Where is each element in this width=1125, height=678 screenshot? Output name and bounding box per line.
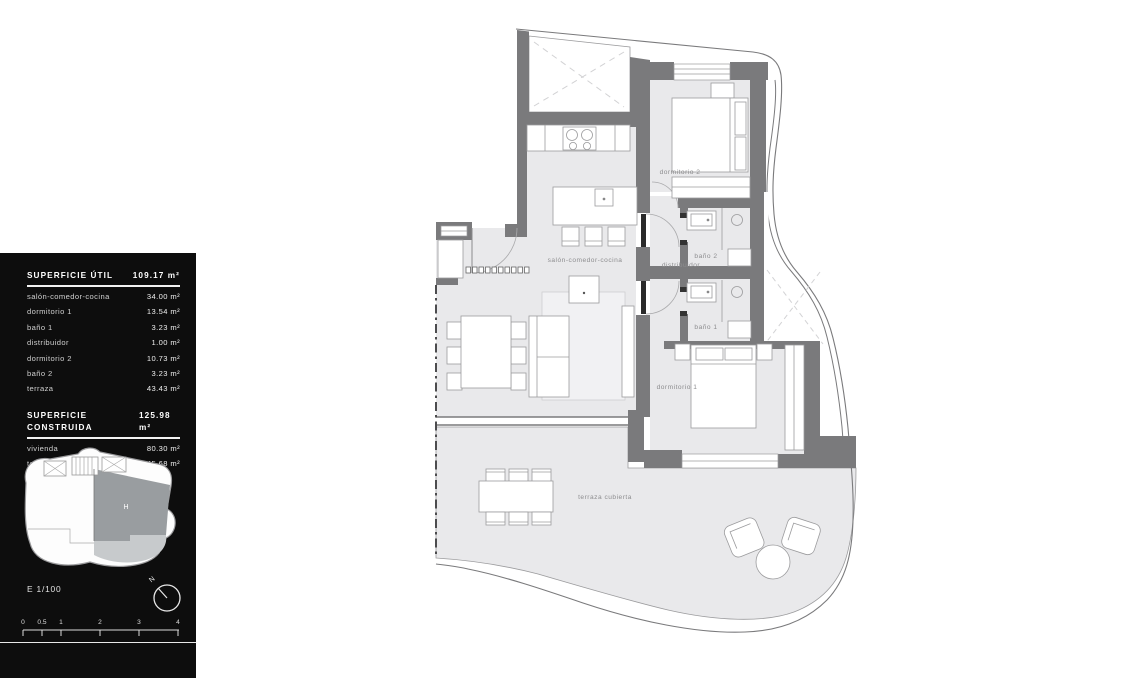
table-row: baño 23.23 m² <box>27 366 180 381</box>
sidebar-divider <box>0 642 196 643</box>
elevator-shaft <box>529 36 630 112</box>
sideboard <box>622 306 634 397</box>
bar-stool <box>608 227 625 246</box>
superficie-util-title: SUPERFICIE ÚTIL <box>27 270 113 282</box>
row-value: 13.54 m² <box>147 304 180 319</box>
tick-label: 2 <box>98 619 102 626</box>
terrace-chair <box>509 512 528 525</box>
row-label: salón-comedor-cocina <box>27 289 110 304</box>
terrace-table <box>479 481 553 512</box>
mini-location-plan: H <box>10 443 186 573</box>
scale-ratio-text: E 1/100 <box>27 584 61 594</box>
terrace-chair <box>486 469 505 482</box>
glass-sliding-doors <box>436 417 630 425</box>
compass-needle <box>158 588 167 598</box>
tick-label: 4 <box>176 619 180 626</box>
superficie-construida-header: SUPERFICIE CONSTRUIDA 125.98 m² <box>27 410 180 439</box>
label-dormitorio1: dormitorio 1 <box>657 384 698 391</box>
tick-label: 0 <box>21 619 25 626</box>
north-compass: N <box>140 573 186 615</box>
entry-closet <box>438 240 463 278</box>
dining-chair <box>511 322 526 339</box>
superficie-util-header: SUPERFICIE ÚTIL 109.17 m² <box>27 270 180 287</box>
area-table: SUPERFICIE ÚTIL 109.17 m² salón-comedor-… <box>27 270 180 472</box>
row-value: 3.23 m² <box>151 320 180 335</box>
label-terraza: terraza cubierta <box>578 494 632 501</box>
superficie-util-total: 109.17 m² <box>133 270 180 282</box>
wardrobe <box>785 345 804 450</box>
scale-ticks <box>23 630 178 636</box>
shower-tray <box>728 249 751 266</box>
utility-shaft <box>764 192 827 346</box>
terrace-chair <box>509 469 528 482</box>
dining-chair <box>447 373 462 390</box>
superficie-construida-total: 125.98 m² <box>139 410 180 434</box>
pillow <box>696 348 723 360</box>
label-salon: salón-comedor-cocina <box>548 257 623 264</box>
nightstand <box>711 83 734 98</box>
row-label: baño 1 <box>27 320 53 335</box>
label-distribuidor: distribuidor <box>662 262 701 269</box>
bar-stool <box>585 227 602 246</box>
table-row: distribuidor1.00 m² <box>27 335 180 350</box>
label-bano1: baño 1 <box>694 324 717 331</box>
row-value: 34.00 m² <box>147 289 180 304</box>
nightstand <box>675 344 690 360</box>
wardrobe <box>672 177 750 198</box>
pillow <box>735 137 746 170</box>
north-label: N <box>148 576 156 585</box>
pillow <box>735 102 746 135</box>
nightstand <box>757 344 772 360</box>
tick-label: 0.5 <box>37 619 46 626</box>
label-dormitorio2: dormitorio 2 <box>660 169 701 176</box>
shower-tray <box>728 321 751 338</box>
round-table <box>756 545 790 579</box>
unit-letter: H <box>123 504 128 511</box>
island-sink <box>595 189 613 206</box>
table-row: salón-comedor-cocina34.00 m² <box>27 289 180 304</box>
row-value: 10.73 m² <box>147 351 180 366</box>
info-sidebar: SUPERFICIE ÚTIL 109.17 m² salón-comedor-… <box>0 253 196 678</box>
sofa <box>529 316 569 397</box>
row-label: distribuidor <box>27 335 69 350</box>
label-bano2: baño 2 <box>694 253 717 260</box>
tick-label: 1 <box>59 619 63 626</box>
dormitorio2-furniture <box>672 83 750 198</box>
tv-cabinet <box>569 276 599 303</box>
row-label: baño 2 <box>27 366 53 381</box>
table-row: dormitorio 210.73 m² <box>27 351 180 366</box>
terrace-chair <box>486 512 505 525</box>
dining-chair <box>511 373 526 390</box>
table-row: baño 13.23 m² <box>27 320 180 335</box>
terrace-chair <box>532 469 551 482</box>
scale-bar: 0 0.5 1 2 3 4 <box>20 613 186 639</box>
row-label: terraza <box>27 381 53 396</box>
tick-label: 3 <box>137 619 141 626</box>
dining-chair <box>447 347 462 364</box>
dining-table <box>461 316 511 388</box>
superficie-construida-title: SUPERFICIE CONSTRUIDA <box>27 410 139 434</box>
row-value: 1.00 m² <box>151 335 180 350</box>
row-label: dormitorio 2 <box>27 351 72 366</box>
terrace-chair <box>532 512 551 525</box>
pillow <box>725 348 752 360</box>
row-label: dormitorio 1 <box>27 304 72 319</box>
table-row: dormitorio 113.54 m² <box>27 304 180 319</box>
dining-chair <box>447 322 462 339</box>
row-value: 43.43 m² <box>147 381 180 396</box>
row-value: 3.23 m² <box>151 366 180 381</box>
dining-chair <box>511 347 526 364</box>
bar-stool <box>562 227 579 246</box>
table-row: terraza43.43 m² <box>27 381 180 396</box>
floor-plan: salón-comedor-cocina distribuidor dormit… <box>420 10 900 660</box>
